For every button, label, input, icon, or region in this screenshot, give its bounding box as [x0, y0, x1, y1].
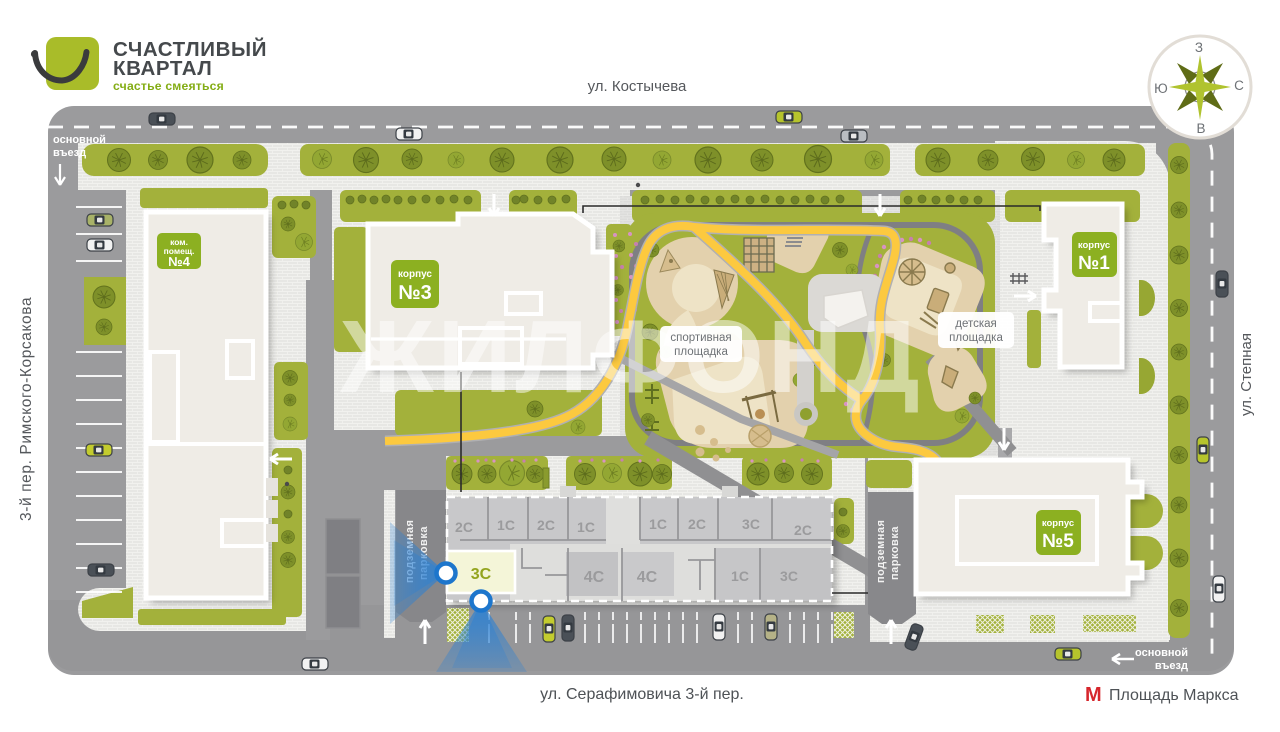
svg-text:счастье смеяться: счастье смеяться	[113, 79, 224, 93]
svg-text:2С: 2С	[794, 522, 812, 538]
svg-text:4С: 4С	[584, 569, 605, 586]
svg-text:1С: 1С	[731, 568, 749, 584]
svg-text:2С: 2С	[455, 519, 473, 535]
svg-text:парковка: парковка	[889, 526, 901, 580]
svg-text:подземная: подземная	[875, 520, 887, 583]
svg-text:М: М	[1085, 684, 1102, 706]
svg-text:1С: 1С	[577, 519, 595, 535]
svg-text:№4: №4	[168, 254, 190, 269]
svg-text:корпус: корпус	[1078, 240, 1110, 251]
svg-text:№5: №5	[1042, 531, 1074, 552]
svg-text:З: З	[1195, 40, 1203, 55]
svg-text:основной: основной	[1135, 647, 1188, 659]
svg-text:корпус: корпус	[1042, 518, 1074, 529]
svg-text:КВАРТАЛ: КВАРТАЛ	[113, 57, 212, 80]
svg-text:3-й пер. Римского-Корсакова: 3-й пер. Римского-Корсакова	[18, 297, 35, 521]
svg-text:Площадь Маркса: Площадь Маркса	[1109, 687, 1239, 704]
svg-text:2С: 2С	[688, 516, 706, 532]
svg-text:ул. Серафимовича 3-й пер.: ул. Серафимовича 3-й пер.	[540, 686, 744, 703]
svg-text:въезд: въезд	[1155, 660, 1188, 672]
svg-text:№1: №1	[1078, 253, 1110, 274]
svg-text:площадка: площадка	[949, 332, 1003, 344]
svg-text:3С: 3С	[471, 566, 492, 583]
svg-text:В: В	[1196, 121, 1205, 136]
svg-text:1С: 1С	[497, 517, 515, 533]
svg-text:площадка: площадка	[674, 346, 728, 358]
svg-text:Ю: Ю	[1154, 81, 1168, 96]
svg-text:1С: 1С	[649, 516, 667, 532]
svg-text:основной: основной	[53, 134, 106, 146]
svg-text:3С: 3С	[780, 568, 798, 584]
svg-text:спортивная: спортивная	[670, 332, 731, 344]
svg-text:4С: 4С	[637, 569, 658, 586]
svg-text:детская: детская	[955, 318, 997, 330]
svg-text:2С: 2С	[537, 517, 555, 533]
svg-text:3С: 3С	[742, 516, 760, 532]
svg-text:С: С	[1234, 78, 1244, 93]
svg-text:ул. Костычева: ул. Костычева	[588, 78, 687, 95]
svg-text:корпус: корпус	[398, 269, 432, 280]
svg-text:въезд: въезд	[53, 147, 86, 159]
svg-text:ул. Степная: ул. Степная	[1238, 333, 1255, 416]
svg-text:ЖИЛФОНД: ЖИЛФОНД	[339, 299, 923, 414]
